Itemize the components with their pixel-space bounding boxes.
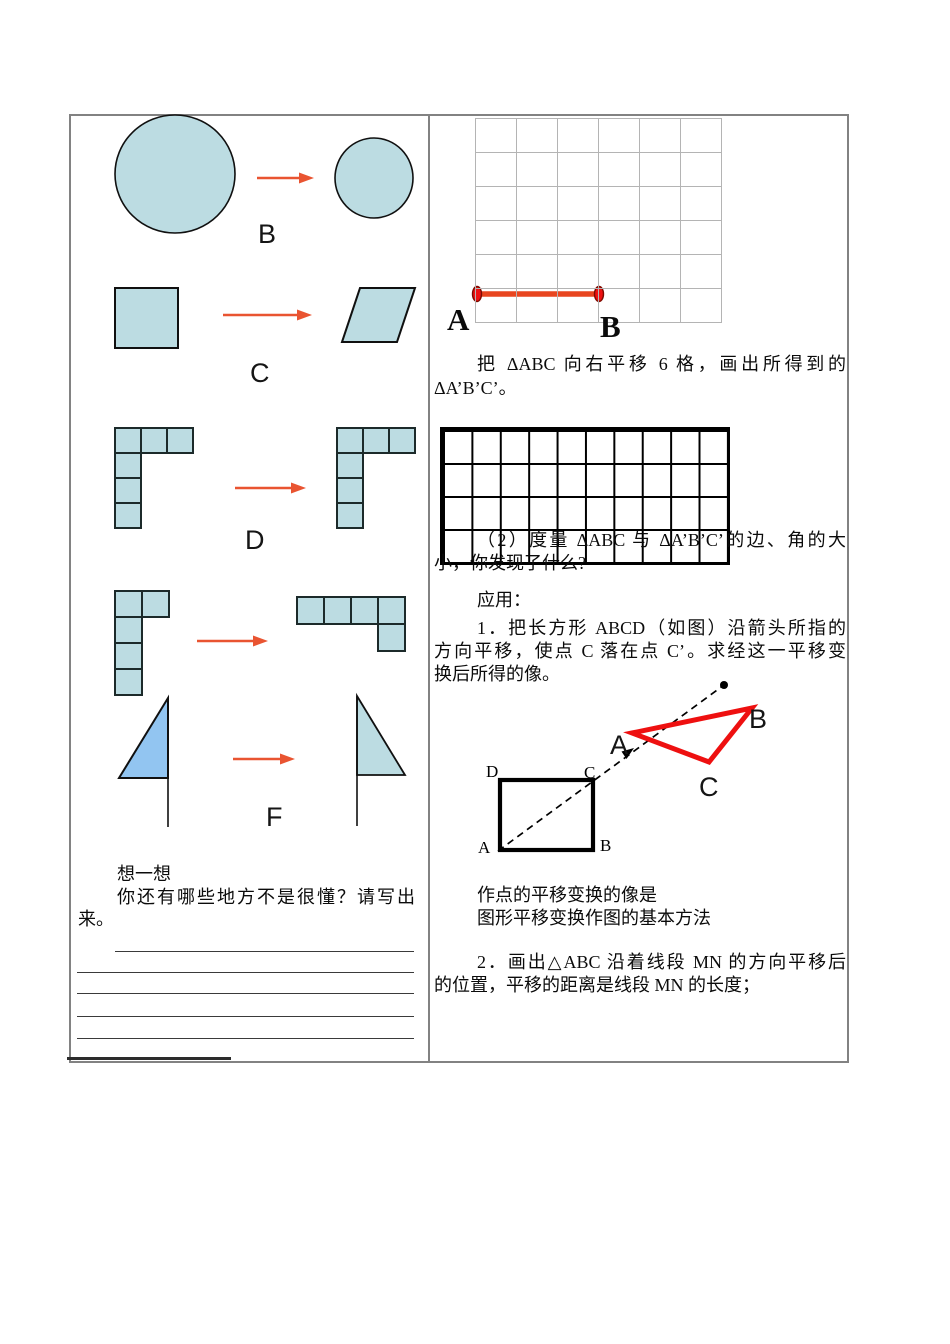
gamma-shape-right <box>337 428 415 528</box>
figure-endpoint-dot <box>720 681 728 689</box>
triangle-label-c: C <box>699 774 719 801</box>
think-title: 想一想 <box>117 863 171 885</box>
row-label-f: F <box>266 804 283 831</box>
triangle-label-a: A <box>610 732 628 759</box>
parallelogram-shape <box>342 288 415 342</box>
point-b-label: B <box>600 311 621 342</box>
arrow-row-b-head <box>299 173 314 184</box>
gamma-shape-left <box>115 428 193 528</box>
item1-line2: 方向平移，使点 C 落在点 C’。求经这一平移变 <box>434 640 846 662</box>
rect-label-a: A <box>478 839 490 856</box>
answer-line-6 <box>67 1057 231 1060</box>
arrow-row-4-head <box>253 636 268 647</box>
rect-label-d: D <box>486 763 498 780</box>
think-line1: 你还有哪些地方不是很懂？请写出 <box>117 886 415 908</box>
figure-dashed-line <box>498 685 724 851</box>
triangle-label-b: B <box>749 706 767 733</box>
think-line2: 来。 <box>78 908 114 930</box>
answer-line-4 <box>77 1016 414 1017</box>
row-label-c: C <box>250 360 270 387</box>
large-circle-shape <box>115 115 235 233</box>
translation-grid-light <box>475 118 722 323</box>
worksheet-page: B C D F 想一想 你还有哪些地方不是很懂？请写出 来。 A B 把 ΔAB… <box>0 0 950 1344</box>
answer-line-5 <box>77 1038 414 1039</box>
point-a-label: A <box>447 304 469 335</box>
answer-line-2 <box>77 972 414 973</box>
para1-line2: ΔA’B’C’。 <box>434 377 517 399</box>
flag-left-triangle <box>119 698 168 778</box>
item2-line1: 2．画出△ABC 沿着线段 MN 的方向平移后 <box>477 951 846 973</box>
arrow-row-d-head <box>291 483 306 494</box>
answer-line-1 <box>115 951 414 952</box>
method-line2: 图形平移变换作图的基本方法 <box>477 907 711 929</box>
small-circle-shape <box>335 138 413 218</box>
para1-line1: 把 ΔABC 向右平移 6 格，画出所得到的 <box>477 353 846 375</box>
rect-label-c: C <box>584 764 595 781</box>
para2-line1: （2）度量 ΔABC 与 ΔA’B’C’的边、角的大 <box>477 529 846 551</box>
para2-line2: 小，你发现了什么? <box>434 552 586 574</box>
apply-heading: 应用： <box>477 589 531 611</box>
arrow-row-c-head <box>297 310 312 321</box>
row-label-b: B <box>258 221 276 248</box>
l-shape-left <box>115 591 169 695</box>
item2-line2: 的位置，平移的距离是线段 MN 的长度； <box>434 974 760 996</box>
row-label-d: D <box>245 527 265 554</box>
flag-right-triangle <box>357 696 405 775</box>
square-shape <box>115 288 178 348</box>
item1-line3: 换后所得的像。 <box>434 663 560 685</box>
item1-line1: 1．把长方形 ABCD（如图）沿箭头所指的 <box>477 617 846 639</box>
method-line1: 作点的平移变换的像是 <box>477 884 657 906</box>
arrow-row-f-head <box>280 754 295 765</box>
answer-line-3 <box>77 993 414 994</box>
bar-shape-right <box>297 597 405 651</box>
figure-red-triangle <box>632 708 752 762</box>
rect-label-b: B <box>600 837 611 854</box>
